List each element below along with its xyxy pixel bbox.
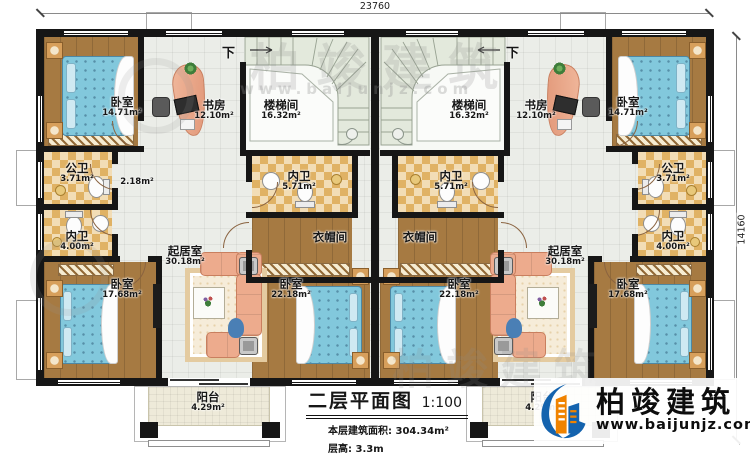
room-label-inner-bath: 内卫5.71m² [282, 170, 316, 192]
closet [58, 264, 114, 276]
room-label-study: 书房12.10m² [194, 99, 233, 121]
window [166, 29, 222, 37]
window [528, 29, 584, 37]
window [706, 214, 714, 250]
nightstand [689, 352, 706, 369]
printer [557, 119, 572, 130]
staircase [244, 36, 370, 150]
wall [606, 146, 714, 152]
wall [498, 250, 504, 283]
window [36, 96, 44, 142]
faucet [410, 174, 421, 185]
nightstand [46, 280, 63, 297]
room-label-study: 书房12.10m² [516, 99, 555, 121]
toilet-tank [295, 201, 315, 208]
wall [498, 156, 504, 182]
window [58, 378, 120, 386]
wall [352, 156, 358, 218]
table-flowers [534, 293, 550, 309]
room-label-bedroom: 卧室22.18m² [271, 278, 310, 300]
pillow [66, 63, 76, 93]
window [36, 214, 44, 250]
pillow [680, 327, 689, 357]
closet [636, 264, 692, 276]
wall [632, 152, 638, 164]
pillow [63, 327, 72, 357]
plan-scale: 1:100 [422, 395, 462, 411]
room-label-stairwell: 楼梯间16.32m² [261, 99, 300, 121]
window [622, 29, 686, 37]
staircase [380, 36, 506, 150]
logo-building-icon [536, 380, 590, 442]
pillow [349, 293, 359, 322]
room-label-bedroom: 卧室17.68m² [102, 278, 141, 300]
balcony-post [470, 422, 488, 438]
pillow [66, 99, 76, 129]
nightstand [689, 122, 706, 139]
pillow [63, 291, 72, 321]
printer [180, 119, 195, 130]
floor-area-line: 本层建筑面积: 304.34m² [328, 422, 468, 437]
room-label-bedroom: 卧室22.18m² [439, 278, 478, 300]
plant [553, 62, 566, 75]
room-label-hall: 2.18m² [120, 178, 154, 188]
nightstand [46, 42, 63, 59]
title-block: 二层平面图 1:100 本层建筑面积: 304.34m² 层高: 3.3m [306, 386, 468, 454]
room-label-bedroom: 卧室17.68m² [608, 278, 647, 300]
dimension-line-top [40, 13, 710, 14]
tv [589, 284, 597, 328]
room-label-bedroom: 卧室14.71m² [102, 96, 141, 118]
table-flowers [200, 293, 216, 309]
dimension-width: 23760 [358, 1, 392, 12]
balcony-post [262, 422, 280, 438]
floor-plan-canvas: 卧室14.71m² 书房12.10m² 楼梯间16.32m² 2.18m² 公卫… [0, 0, 750, 454]
balcony-post [140, 422, 158, 438]
side-table [239, 337, 258, 355]
window [64, 29, 128, 37]
desk-chair [582, 97, 600, 117]
plan-title: 二层平面图 [308, 390, 413, 412]
nightstand [46, 122, 63, 139]
faucet [686, 185, 697, 196]
room-label-cloakroom: 衣帽间 [403, 231, 438, 244]
wall [371, 29, 379, 386]
nightstand [689, 42, 706, 59]
tv [153, 284, 161, 328]
plan-title-row: 二层平面图 1:100 [306, 386, 468, 419]
room-label-public-bath: 公卫3.71m² [656, 162, 690, 184]
nightstand [689, 280, 706, 297]
floor-height-value: 3.3m [355, 444, 383, 454]
window [36, 162, 44, 198]
wall [246, 156, 252, 182]
pillow [676, 99, 686, 129]
logo-text-group: 柏竣建筑 www.baijunjz.com [596, 388, 750, 434]
room-label-cloakroom: 衣帽间 [313, 231, 348, 244]
toilet-tank [437, 201, 457, 208]
nightstand [46, 352, 63, 369]
person-figure [506, 318, 522, 338]
company-logo: 柏竣建筑 www.baijunjz.com [534, 378, 750, 444]
room-label-living: 起居室30.18m² [165, 245, 204, 267]
bay-window [713, 300, 735, 380]
plant [184, 62, 197, 75]
faucet [55, 185, 66, 196]
side-table [494, 337, 513, 355]
wall [112, 152, 118, 164]
window [394, 378, 458, 386]
floor-area-value: 304.34m² [395, 426, 448, 437]
nightstand [383, 352, 400, 369]
wall [246, 212, 358, 218]
dimension-height: 14160 [737, 212, 748, 246]
pillow [394, 293, 404, 322]
wall [36, 256, 120, 262]
pillow [676, 63, 686, 93]
toilet-tank [65, 211, 83, 218]
toilet-tank [669, 211, 687, 218]
room-label-inner-bath: 内卫5.71m² [434, 170, 468, 192]
window [706, 162, 714, 198]
faucet [690, 237, 700, 247]
wall [630, 256, 714, 262]
room-label-inner-bath: 内卫4.00m² [60, 230, 94, 252]
floor-area-label: 本层建筑面积: [328, 426, 392, 437]
balcony-railing [148, 440, 270, 447]
window [36, 298, 44, 370]
sliding-door [168, 378, 250, 386]
desk-chair [152, 97, 170, 117]
room-label-public-bath: 公卫3.71m² [60, 162, 94, 184]
closet [400, 263, 496, 276]
logo-website: www.baijunjz.com [596, 417, 750, 434]
window [706, 298, 714, 370]
window [706, 96, 714, 142]
room-label-living: 起居室30.18m² [545, 245, 584, 267]
stairs-down-label: 下 [506, 42, 519, 61]
stairs-down-label: 下 [222, 42, 235, 61]
wall [380, 150, 510, 156]
room-label-bedroom: 卧室14.71m² [608, 96, 647, 118]
logo-company-name: 柏竣建筑 [596, 388, 750, 417]
wall [240, 62, 246, 152]
window [292, 29, 344, 37]
closet [254, 263, 350, 276]
room-label-inner-bath: 内卫4.00m² [656, 230, 690, 252]
wall [36, 146, 144, 152]
wall [240, 150, 370, 156]
room-label-stairwell: 楼梯间16.32m² [449, 99, 488, 121]
wall [392, 212, 504, 218]
wall [42, 204, 118, 210]
person-figure [228, 318, 244, 338]
floor-height-label: 层高: [328, 444, 352, 454]
wall [392, 156, 398, 218]
nightstand [352, 352, 369, 369]
window [406, 29, 458, 37]
floor-height-line: 层高: 3.3m [328, 440, 468, 454]
faucet [331, 174, 342, 185]
wall [504, 62, 510, 152]
room-label-balcony: 阳台4.29m² [191, 391, 225, 413]
bay-window [713, 150, 735, 206]
pillow [680, 291, 689, 321]
window [292, 378, 356, 386]
wall [632, 204, 708, 210]
